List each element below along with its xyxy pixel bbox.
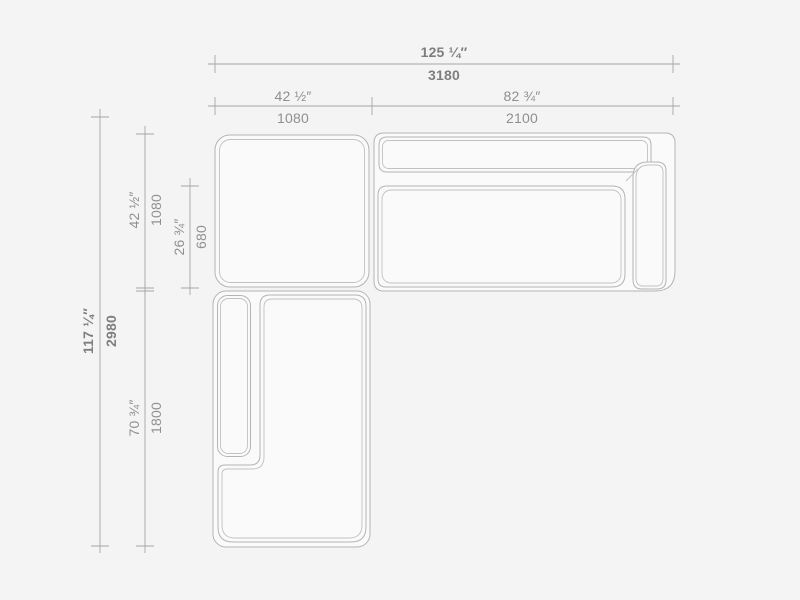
dim-overall-width-inch: 125 ¼″ — [421, 45, 468, 59]
dim-seat-depth-mm: 680 — [194, 225, 208, 249]
dim-chaise-length-mm: 1800 — [149, 402, 163, 434]
dim-right-width-mm: 2100 — [506, 111, 538, 125]
dim-left-width-inch: 42 ½″ — [274, 89, 311, 103]
chaise-module-shape — [213, 291, 370, 547]
sofa-plan-svg — [0, 0, 800, 600]
dim-left-width-mm: 1080 — [277, 111, 309, 125]
dim-chaise-length-inch: 70 ¾″ — [127, 399, 141, 436]
dim-overall-width-mm: 3180 — [428, 68, 460, 82]
sofa-dimension-drawing: 125 ¼″ 3180 42 ½″ 1080 82 ¾″ 2100 117 ¼″… — [0, 0, 800, 600]
dim-overall-depth-inch: 117 ¼″ — [81, 308, 95, 354]
dim-right-width-inch: 82 ¾″ — [503, 89, 540, 103]
corner-module-shape — [215, 135, 369, 287]
dim-seat-depth-inch: 26 ¾″ — [172, 218, 186, 255]
sofa-module-shape — [374, 133, 675, 291]
dim-overall-depth-mm: 2980 — [104, 315, 118, 347]
dim-corner-depth-mm: 1080 — [149, 194, 163, 226]
dim-corner-depth-inch: 42 ½″ — [127, 191, 141, 228]
